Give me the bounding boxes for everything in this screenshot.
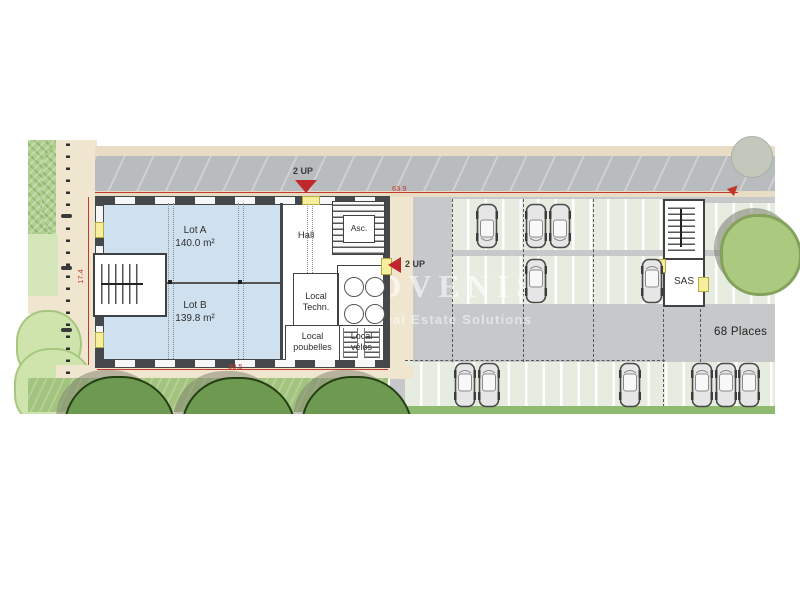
bikes-label-2: vélos xyxy=(340,342,383,353)
fence-mark xyxy=(61,266,72,270)
parking-stalls-row1 xyxy=(452,199,664,250)
lot-divider-wall xyxy=(163,282,280,284)
stair-elevator-unit: Asc. xyxy=(332,201,385,255)
bikes-label-1: Local xyxy=(340,331,383,342)
west-window xyxy=(95,332,104,348)
plan-bottom-edge xyxy=(0,414,800,600)
sidewalk-top xyxy=(95,146,775,156)
sanitary-room xyxy=(337,265,384,327)
wc-fixture xyxy=(344,304,364,324)
hall-label: Hall xyxy=(291,230,321,241)
bikes-room: Local vélos xyxy=(340,325,383,360)
entrance-door xyxy=(302,196,320,205)
dimension-line-left xyxy=(88,197,89,365)
bins-label-1: Local xyxy=(286,331,339,342)
exterior-stair xyxy=(663,199,705,262)
grid-line-horizontal xyxy=(405,360,665,361)
fence-mark xyxy=(61,328,72,332)
bins-room: Local poubelles xyxy=(285,325,340,360)
stair-rail xyxy=(680,209,682,247)
lot-a-label: Lot A 140.0 m² xyxy=(150,224,240,250)
parking-capacity-label: 68 Places xyxy=(714,326,767,338)
stairwell-west xyxy=(93,253,167,317)
bins-label-2: poubelles xyxy=(286,342,339,353)
elevator-label: Asc. xyxy=(344,223,374,234)
parking-stalls-row3 xyxy=(405,362,775,407)
wc-fixture xyxy=(365,277,385,297)
planting-strip xyxy=(390,406,775,414)
lawn-left xyxy=(28,234,58,296)
sas-door xyxy=(698,277,709,292)
dimension-label-bottom: 30.5 xyxy=(228,362,243,371)
tree-icon xyxy=(720,214,800,296)
stair-rail xyxy=(101,283,143,285)
wall-hall xyxy=(280,203,283,359)
ramp-up-label-side: 2 UP xyxy=(405,259,425,269)
grid-line xyxy=(593,199,594,362)
west-window xyxy=(95,222,104,238)
dimension-label-left: 17.4 xyxy=(76,269,85,284)
sas-door xyxy=(655,259,666,273)
elevator-cab: Asc. xyxy=(343,215,375,243)
lot-a-name: Lot A xyxy=(150,224,240,237)
dimension-label-top: 63.9 xyxy=(392,184,407,193)
fence-mark xyxy=(61,214,72,218)
floor-plan: 68 Places ADVENIS Real Estate Solutions … xyxy=(0,0,800,600)
roundabout-island xyxy=(731,136,773,178)
ramp-up-label-top: 2 UP xyxy=(293,166,313,176)
tech-label-1: Local xyxy=(294,291,338,302)
wc-fixture xyxy=(344,277,364,297)
column-node xyxy=(168,280,172,284)
building: Lot A 140.0 m² Lot B 139.8 m² Asc. Hall … xyxy=(95,196,390,366)
ramp-arrow-down-icon xyxy=(295,180,317,193)
fence-line xyxy=(66,142,70,374)
local-technique-room: Local Techn. xyxy=(293,273,339,333)
dimension-line-top xyxy=(95,192,738,193)
lot-a-area: 140.0 m² xyxy=(150,237,240,250)
column-node xyxy=(238,280,242,284)
road xyxy=(95,156,775,191)
watermark-tagline: Real Estate Solutions xyxy=(374,312,532,327)
tech-label-2: Techn. xyxy=(294,302,338,313)
ramp-arrow-left-icon xyxy=(388,257,401,273)
wc-fixture xyxy=(365,304,385,324)
